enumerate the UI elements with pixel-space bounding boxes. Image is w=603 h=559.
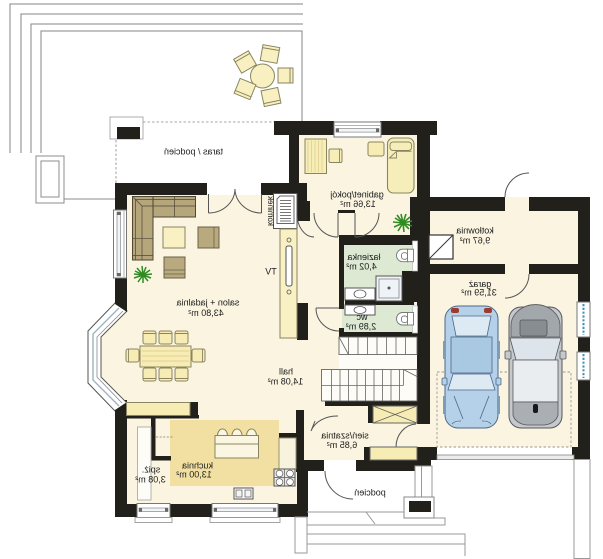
- svg-text:31,59 m²: 31,59 m²: [461, 288, 497, 298]
- svg-text:TV: TV: [265, 267, 277, 277]
- svg-text:14,08 m²: 14,08 m²: [268, 377, 304, 387]
- svg-text:4,02 m²: 4,02 m²: [346, 262, 377, 272]
- svg-text:kominek: kominek: [266, 195, 275, 226]
- svg-text:podcień: podcień: [354, 488, 386, 498]
- svg-text:43,80 m²: 43,80 m²: [188, 308, 224, 318]
- svg-text:kotłownia: kotłownia: [456, 226, 494, 236]
- svg-text:spiż.: spiż.: [142, 465, 161, 475]
- svg-text:taras / podcień: taras / podcień: [164, 147, 223, 157]
- svg-text:hall: hall: [279, 367, 293, 377]
- svg-text:6,85 m²: 6,85 m²: [327, 440, 358, 450]
- svg-text:wc: wc: [356, 312, 368, 322]
- svg-text:2,89 m²: 2,89 m²: [346, 322, 377, 332]
- svg-text:salon + jadalnia: salon + jadalnia: [177, 298, 240, 308]
- svg-text:13,66 m²: 13,66 m²: [340, 199, 376, 209]
- svg-text:13,00 m²: 13,00 m²: [176, 470, 212, 480]
- svg-text:gabinet/pokój: gabinet/pokój: [330, 190, 384, 200]
- svg-text:łazienka: łazienka: [347, 252, 380, 262]
- svg-text:3,08 m²: 3,08 m²: [135, 475, 166, 485]
- svg-text:9,67 m²: 9,67 m²: [460, 236, 491, 246]
- svg-text:sień/szatnia: sień/szatnia: [321, 431, 369, 441]
